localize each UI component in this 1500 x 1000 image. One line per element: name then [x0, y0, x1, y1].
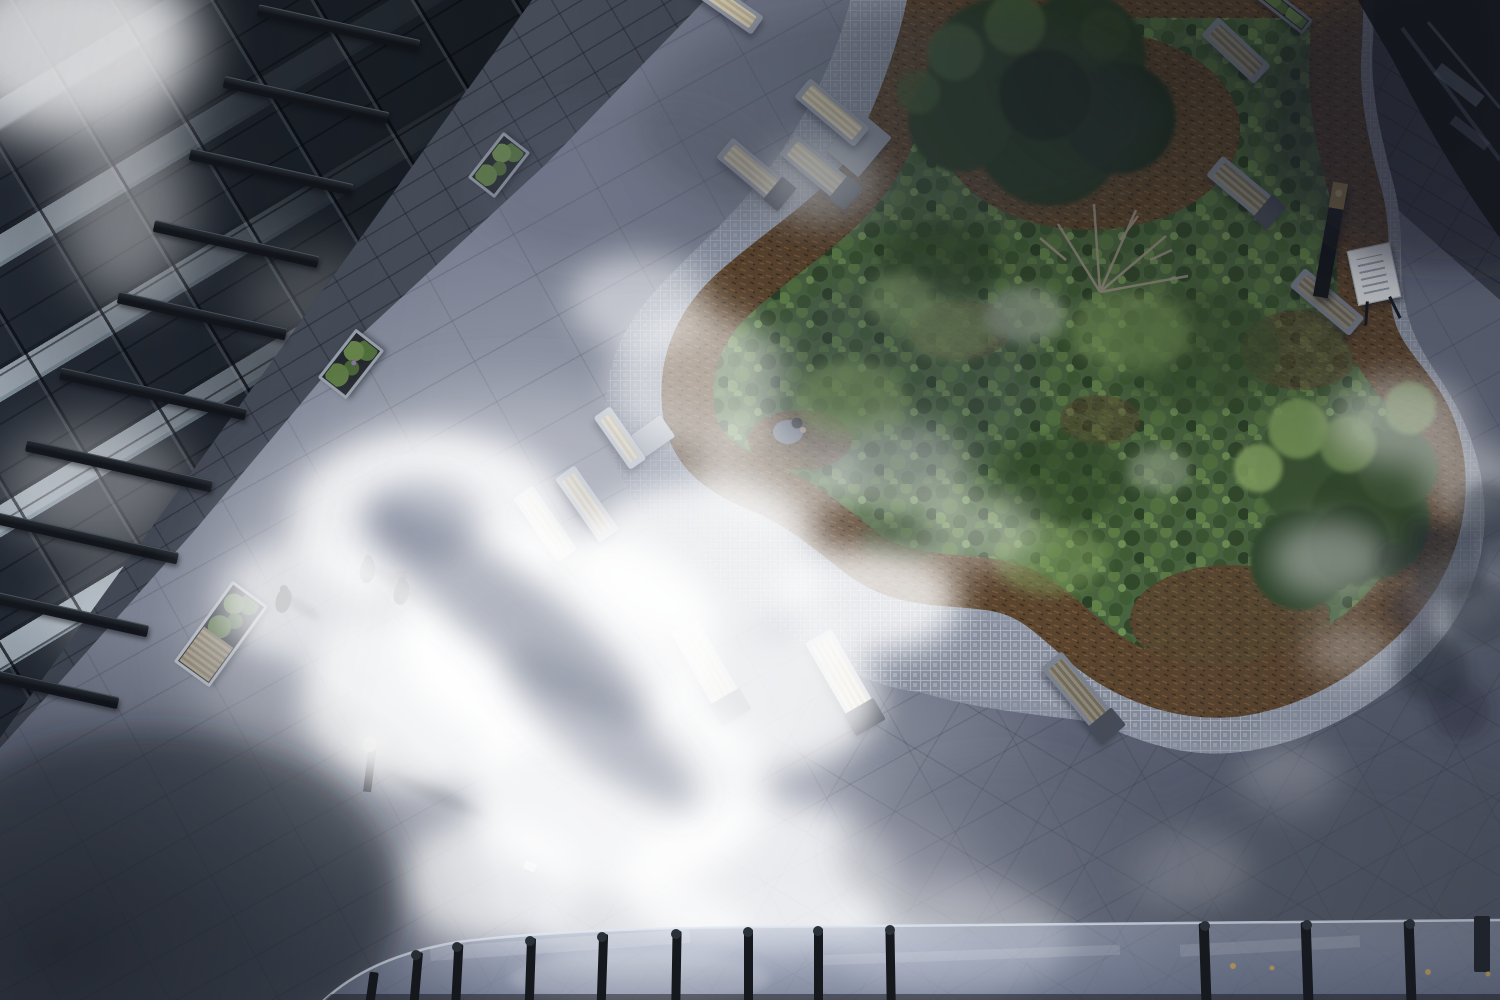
glass-balustrade — [0, 0, 1500, 1000]
courtyard-aerial-photo — [0, 0, 1500, 1000]
